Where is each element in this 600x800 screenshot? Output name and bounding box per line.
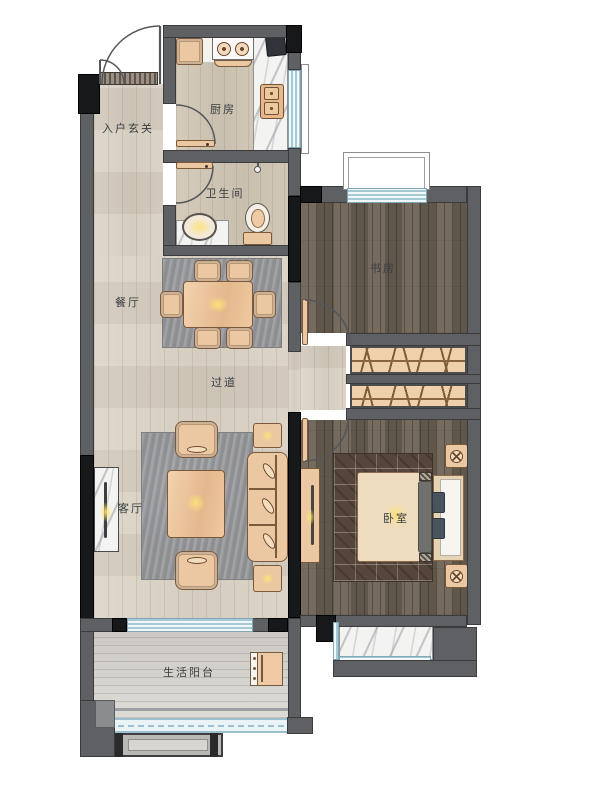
room-label-living: 客厅 (118, 500, 144, 516)
room-label-dining: 餐厅 (115, 294, 141, 310)
vestibule-gap-floor (288, 352, 300, 412)
bathroom-sink (182, 213, 217, 241)
dining-chair (194, 327, 221, 349)
coffee-table-light (183, 490, 209, 516)
wall-segment (346, 374, 481, 384)
bay-window-floor (339, 622, 433, 660)
washer-knob-icon (253, 667, 256, 670)
wall-segment (288, 282, 301, 352)
sofa-back-line (275, 455, 277, 558)
wall-segment (286, 25, 302, 53)
bed-throw (419, 472, 432, 481)
sink-basin (264, 102, 279, 115)
study-window-frame-inner (348, 157, 425, 189)
ceiling-light-icon (254, 166, 261, 173)
room-label-kitchen: 厨房 (210, 101, 236, 117)
wall-segment (268, 618, 288, 632)
lamp-icon (450, 450, 463, 463)
kitchen-cabinet (176, 38, 203, 65)
dining-chair (226, 327, 253, 349)
kitchen-window (288, 70, 301, 148)
vestibule-floor (300, 346, 346, 410)
bed-runner (418, 481, 432, 553)
washer-knob-icon (253, 677, 256, 680)
entry-floor (94, 84, 163, 256)
burner-icon (235, 42, 249, 56)
lamp-icon (450, 570, 463, 583)
washing-machine (250, 652, 283, 686)
wall-segment (288, 618, 301, 733)
floor-plan: 入户玄关 厨房 卫生间 餐厅 过道 客厅 书房 卧室 生活阳台 (0, 0, 600, 800)
balcony-window (94, 718, 288, 733)
bay-window-edge (333, 622, 339, 660)
balcony-window-dash (98, 725, 284, 727)
bedroom-wardrobe (350, 384, 467, 408)
balcony-track-line (94, 708, 288, 711)
wall-segment (163, 25, 301, 38)
ledge-post (115, 733, 123, 757)
nightstand (445, 564, 468, 588)
armchair-cushion (187, 446, 207, 453)
door-handle-icon (205, 165, 208, 168)
room-label-bedroom: 卧室 (383, 510, 409, 526)
wall-segment (288, 412, 301, 618)
dining-table-light (203, 293, 233, 316)
pillow (432, 518, 445, 539)
study-wardrobe (350, 346, 467, 374)
wall-segment (80, 455, 94, 625)
tv-cabinet-light (97, 498, 115, 526)
wall-segment (288, 196, 301, 282)
sink-basin (264, 87, 279, 100)
wall-segment (112, 618, 127, 632)
ledge-post (210, 733, 218, 757)
room-label-hallway: 过道 (211, 374, 237, 390)
side-table-light (259, 571, 276, 586)
washer-knob-icon (253, 657, 256, 660)
balcony-sliding-door (127, 618, 253, 632)
kitchen-door-leaf (176, 140, 215, 147)
stove-shelf (214, 60, 252, 67)
ledge-inner (128, 739, 208, 751)
bed-throw (419, 553, 432, 562)
toilet-seat (251, 209, 265, 228)
sofa-seat-divider (249, 488, 275, 490)
study-window (347, 188, 427, 203)
wall-segment (346, 333, 481, 346)
wall-segment (95, 700, 115, 728)
room-label-bathroom: 卫生间 (206, 185, 245, 201)
sofa (247, 452, 288, 562)
room-label-entry: 入户玄关 (102, 120, 154, 136)
dining-chair (194, 260, 221, 282)
entry-threshold (100, 72, 158, 85)
toilet-tank (243, 232, 272, 245)
kitchen-sink (260, 84, 284, 119)
wall-segment (163, 245, 301, 256)
wall-segment (300, 186, 322, 203)
wall-segment (333, 660, 477, 677)
armchair-cushion (187, 557, 207, 564)
range-hood (265, 35, 287, 57)
wall-segment (287, 717, 313, 734)
dining-chair (253, 291, 276, 318)
bedroom-tv-light (303, 505, 317, 529)
sofa-cushion (260, 496, 277, 515)
room-label-study: 书房 (370, 260, 396, 276)
pillow (432, 492, 445, 513)
study-door-leaf (302, 299, 308, 345)
dining-chair (160, 291, 183, 318)
dining-chair (226, 260, 253, 282)
bathroom-door-leaf (176, 162, 213, 169)
kitchen-window-frame (301, 64, 309, 154)
room-label-balcony: 生活阳台 (163, 664, 215, 680)
burner-icon (217, 42, 231, 56)
nightstand (445, 444, 468, 468)
wall-segment (346, 408, 481, 420)
study-window-frame (343, 152, 430, 190)
side-table-light (259, 428, 276, 443)
washer-door-line (261, 655, 263, 682)
wall-segment (78, 74, 100, 114)
bedroom-door-leaf (302, 418, 308, 462)
door-handle-icon (206, 143, 209, 146)
sofa-seat-divider (249, 524, 275, 526)
stove (212, 37, 254, 60)
wall-segment (467, 186, 481, 625)
